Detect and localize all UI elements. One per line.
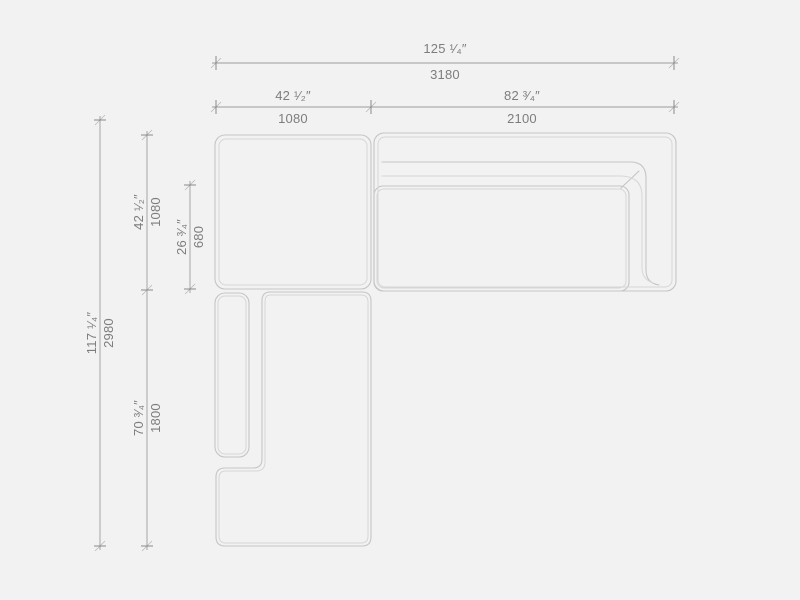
sofa-seat-cushion-inner-line [377,189,626,288]
seat-module-depth-inches-label: 42 ¹⁄₂″ [130,137,147,287]
total-width-mm-label: 3180 [375,67,515,83]
total-depth-inches-label: 117 ¹⁄₄″ [83,258,100,408]
square-seat-module-outline [215,135,371,289]
chaise-seat-outline [216,292,371,546]
sofa-module-width-inches-label: 82 ³⁄₄″ [452,88,592,104]
seat-module-width-mm-label: 1080 [223,111,363,127]
chaise-side-cushion-inner-line [218,296,246,454]
sofa-backrest-armrest-edge [382,162,659,285]
total-width-inches-label: 125 ¹⁄₄″ [375,41,515,57]
seat-module-depth-label-group: 42 ¹⁄₂″ 1080 [130,137,164,287]
chaise-module-depth-mm-label: 1800 [147,343,164,493]
seat-module-depth-mm-label: 1080 [147,137,164,287]
total-depth-label-group: 117 ¹⁄₄″ 2980 [83,258,117,408]
sofa-module-shell-inner-line [378,137,672,287]
chaise-module-depth-label-group: 70 ³⁄₄″ 1800 [130,343,164,493]
chaise-side-cushion-outline [215,293,249,457]
seat-cushion-depth-inches-label: 26 ³⁄₄″ [173,162,190,312]
sofa-seat-cushion-outline [374,186,629,291]
total-depth-mm-label: 2980 [100,258,117,408]
sofa-dimension-drawing: 125 ¹⁄₄″ 3180 42 ¹⁄₂″ 1080 82 ³⁄₄″ 2100 … [0,0,800,600]
furniture-inner-lines [218,137,672,543]
furniture-outlines [215,133,676,546]
sofa-module-shell-outline [374,133,676,291]
drawing-lines [0,0,800,600]
chaise-seat-inner-line [219,295,368,543]
seat-module-width-inches-label: 42 ¹⁄₂″ [223,88,363,104]
sofa-module-width-mm-label: 2100 [452,111,592,127]
square-seat-module-inner-line [219,139,367,285]
chaise-module-depth-inches-label: 70 ³⁄₄″ [130,343,147,493]
backrest-armrest-miter-line [621,171,639,188]
seat-cushion-depth-label-group: 26 ³⁄₄″ 680 [173,162,207,312]
sofa-seat-deck-line [382,176,653,283]
seat-cushion-depth-mm-label: 680 [190,162,207,312]
